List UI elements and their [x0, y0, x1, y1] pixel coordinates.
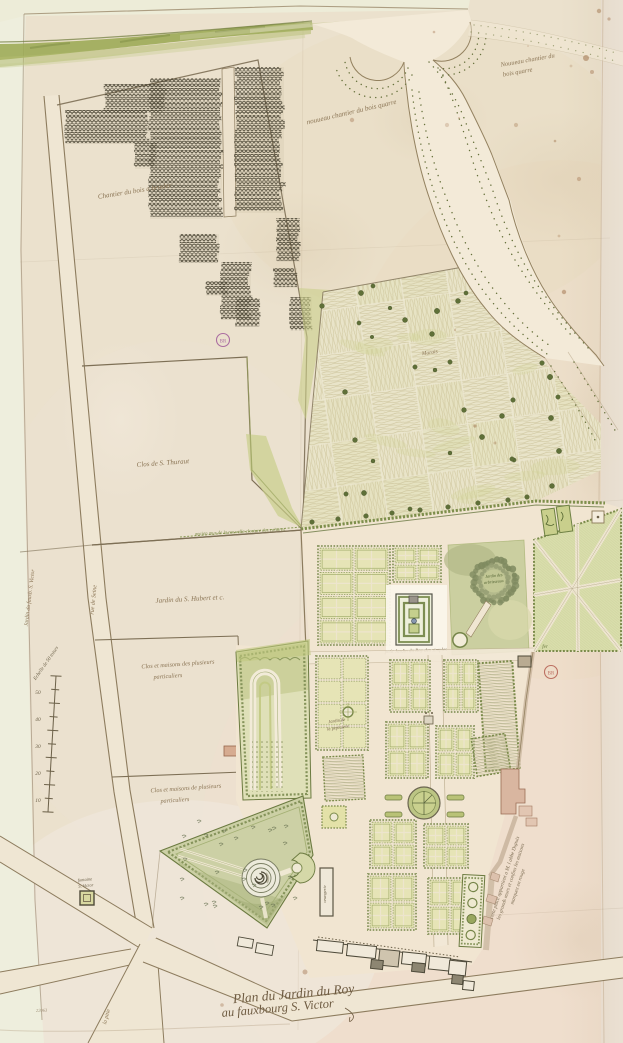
svg-text:fer: fer: [542, 645, 548, 650]
svg-text:40: 40: [35, 717, 41, 723]
svg-text:BR: BR: [220, 340, 227, 345]
svg-text:30: 30: [34, 744, 41, 750]
svg-text:BR: BR: [548, 672, 555, 677]
svg-text:20: 20: [35, 771, 41, 777]
svg-text:orangerie: orangerie: [322, 885, 327, 902]
svg-text:22063: 22063: [36, 1008, 48, 1013]
svg-text:10: 10: [35, 798, 41, 804]
svg-text:50: 50: [35, 690, 41, 696]
